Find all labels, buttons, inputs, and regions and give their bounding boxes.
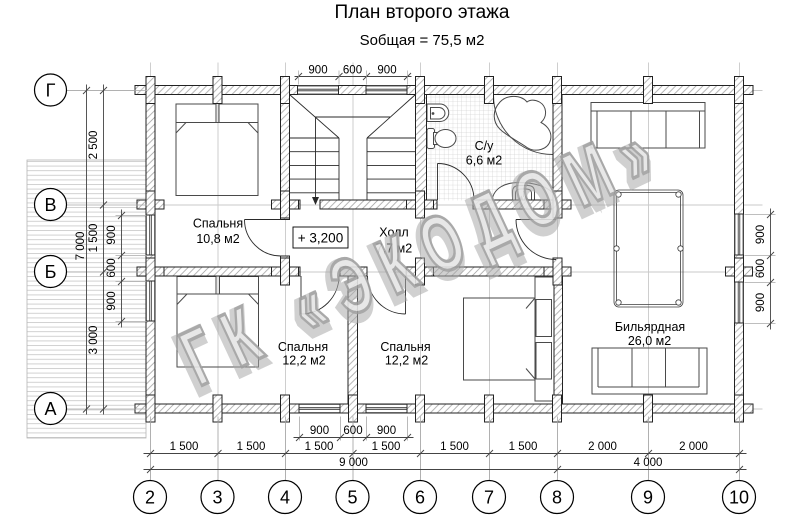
svg-text:7: 7 [484,488,494,508]
svg-text:26,0 м2: 26,0 м2 [628,334,671,348]
svg-text:600: 600 [343,425,362,437]
svg-text:6: 6 [415,488,425,508]
svg-text:Спальня: Спальня [380,340,430,354]
svg-text:900: 900 [755,293,767,312]
svg-text:Sобщая = 75,5 м2: Sобщая = 75,5 м2 [360,32,485,49]
svg-text:2: 2 [145,488,155,508]
svg-text:900: 900 [377,65,396,77]
svg-text:600: 600 [343,65,362,77]
svg-text:10,8 м2: 10,8 м2 [196,232,239,246]
svg-text:6,6 м2: 6,6 м2 [466,154,502,168]
svg-text:900: 900 [310,425,329,437]
svg-text:А: А [44,399,56,419]
svg-text:1 500: 1 500 [440,441,469,453]
svg-text:2 000: 2 000 [679,441,708,453]
svg-text:4: 4 [280,488,290,508]
svg-text:Б: Б [45,262,57,282]
svg-text:2 500: 2 500 [88,131,100,160]
svg-text:9: 9 [643,488,653,508]
svg-text:900: 900 [377,425,396,437]
svg-text:1 500: 1 500 [170,441,199,453]
svg-text:1 500: 1 500 [509,441,538,453]
svg-text:900: 900 [755,225,767,244]
svg-text:План второго этажа: План второго этажа [335,2,510,23]
svg-text:7 000: 7 000 [75,232,87,261]
svg-text:900: 900 [106,225,118,244]
svg-text:С/у: С/у [475,139,495,153]
svg-text:Бильярдная: Бильярдная [615,320,685,334]
svg-text:9 000: 9 000 [339,457,368,469]
svg-text:Г: Г [46,81,56,101]
svg-text:1 500: 1 500 [88,224,100,253]
svg-text:2 000: 2 000 [588,441,617,453]
svg-text:В: В [44,195,56,215]
svg-text:Спальня: Спальня [193,217,243,231]
svg-text:8: 8 [552,488,562,508]
svg-text:1 500: 1 500 [305,441,334,453]
svg-text:600: 600 [106,258,118,277]
svg-text:+ 3,200: + 3,200 [298,231,343,246]
svg-text:4 000: 4 000 [634,457,663,469]
svg-text:600: 600 [755,259,767,278]
svg-text:3: 3 [212,488,222,508]
svg-text:5: 5 [347,488,357,508]
svg-text:10: 10 [729,488,749,508]
svg-text:12,2 м2: 12,2 м2 [385,354,428,368]
svg-text:900: 900 [106,291,118,310]
svg-text:900: 900 [308,65,327,77]
svg-text:1 500: 1 500 [372,441,401,453]
svg-text:1 500: 1 500 [237,441,266,453]
svg-text:3 000: 3 000 [88,326,100,355]
